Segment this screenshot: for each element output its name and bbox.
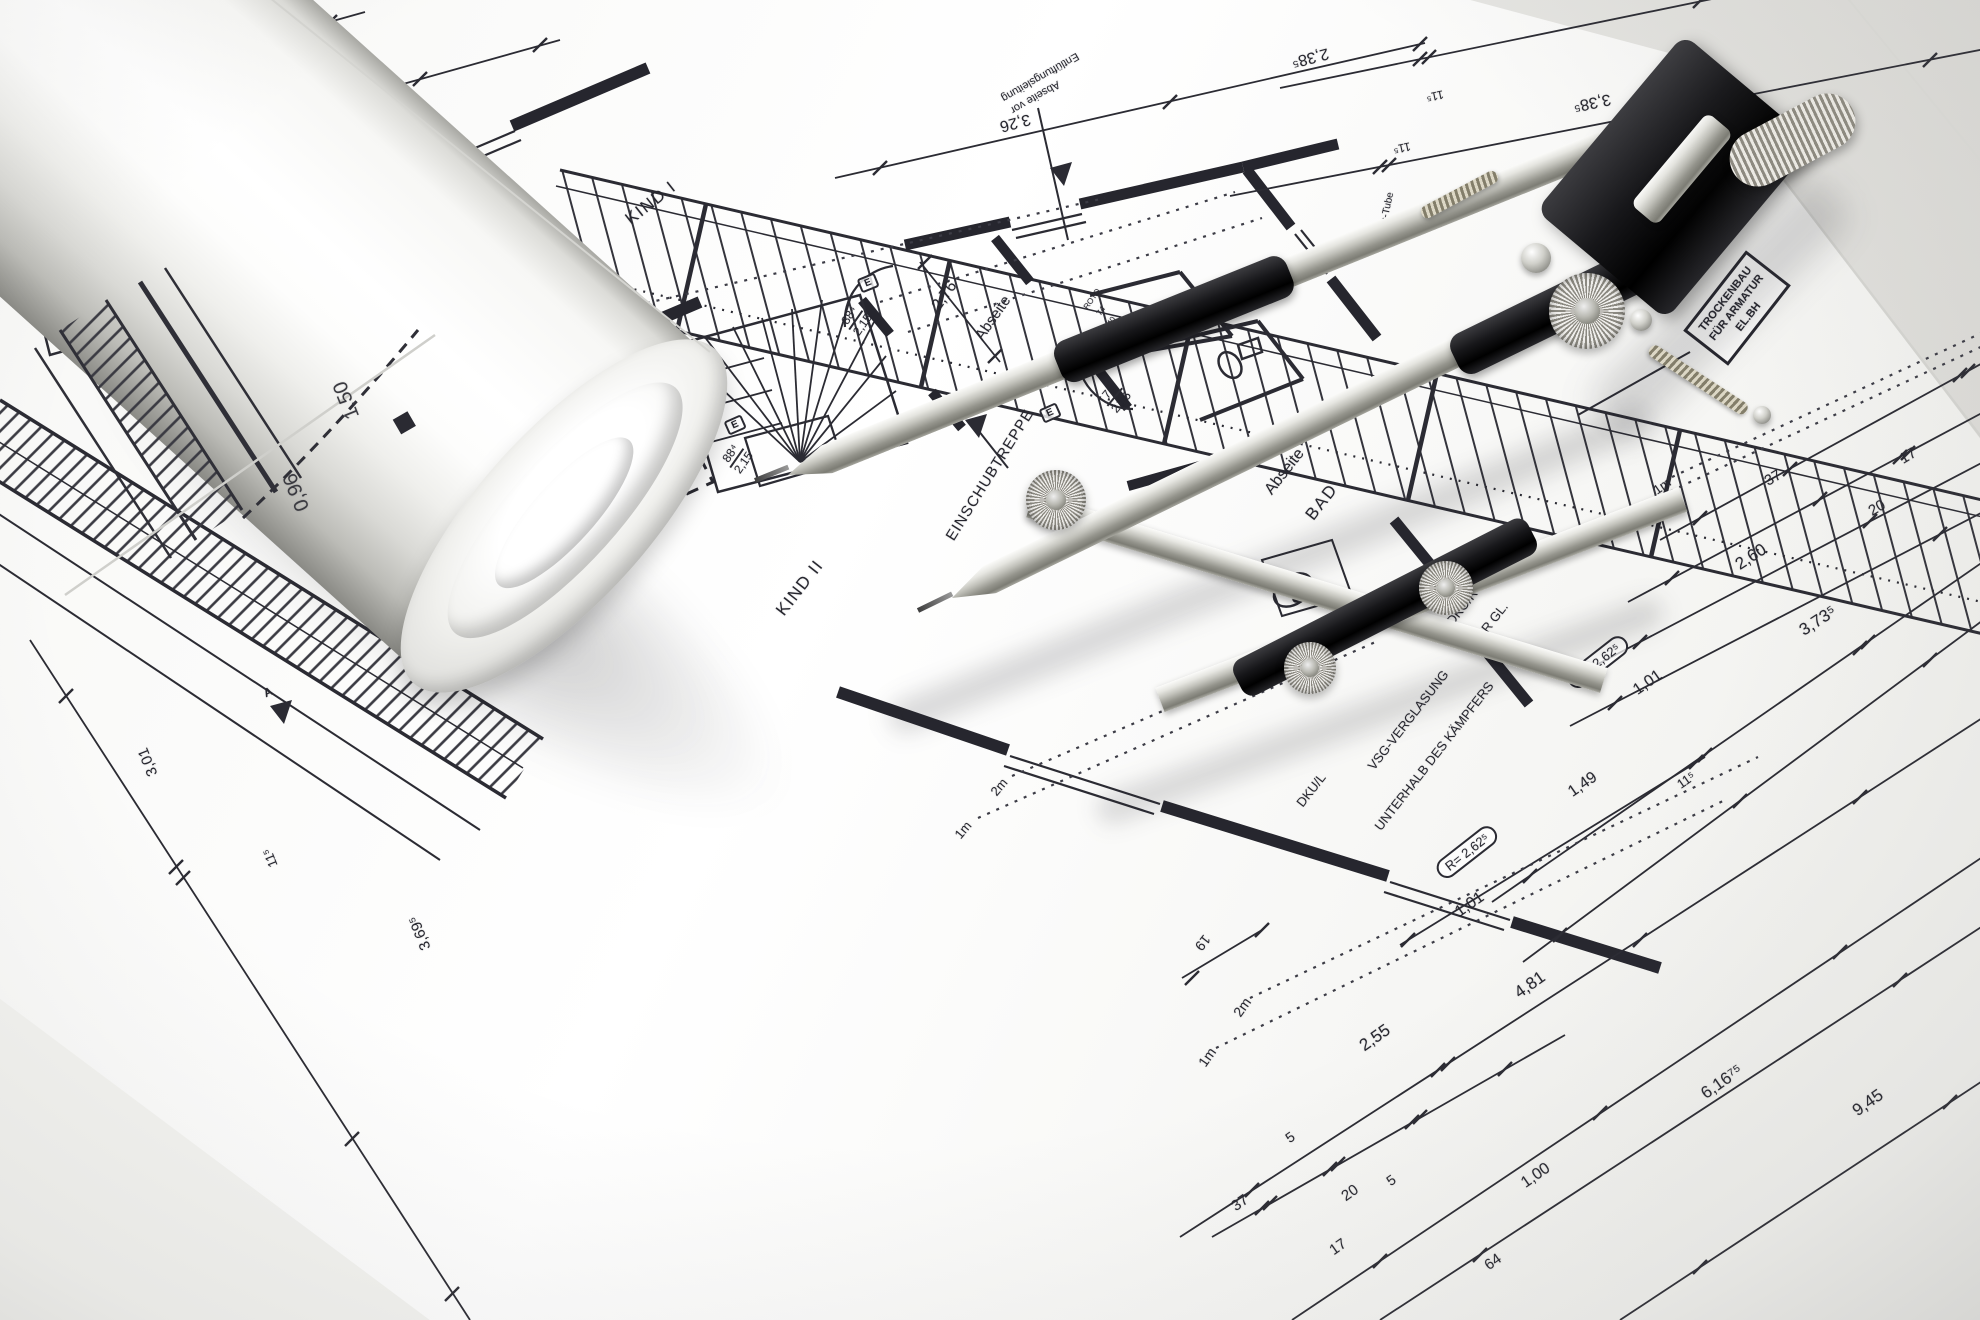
wheel-hub: [1574, 298, 1600, 324]
compass-thumbwheel-4: [1549, 273, 1625, 349]
wheel-hub: [1046, 490, 1066, 510]
compass-rivet-1: [1521, 243, 1551, 273]
wheel-hub: [1301, 659, 1319, 677]
compass-thumbwheel-1: [1026, 470, 1086, 530]
compass-thumbwheel-2: [1419, 561, 1473, 615]
roll-print-lines: [35, 0, 710, 595]
compass-thumbwheel-3: [1284, 642, 1336, 694]
compass-rivet-2: [1630, 309, 1652, 331]
blueprint-photo: Küche 12,63 KIND I KIND II Abseite 2,76 …: [0, 0, 1980, 1320]
wheel-hub: [1437, 579, 1455, 597]
compass-spindle-cap: [1753, 406, 1771, 424]
